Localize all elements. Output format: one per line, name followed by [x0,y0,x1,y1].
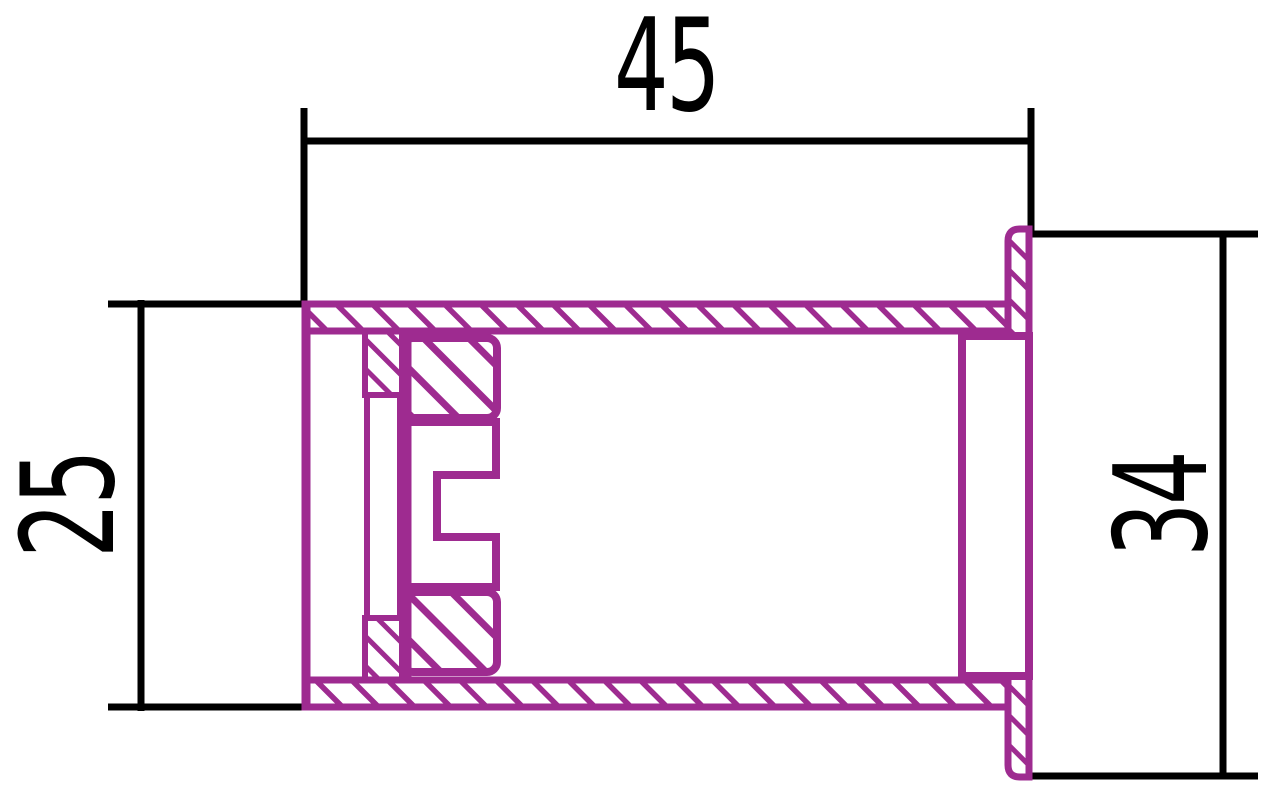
dimension-label-body-diameter-group: 25 [0,452,144,558]
inner-sleeve-lower-section [365,618,402,680]
dimension-body-diameter: 25 [0,300,305,711]
gland-profile [407,422,496,587]
end-cap-face [962,336,1029,676]
dimension-label-length: 45 [614,0,718,141]
drawing-canvas: 45 25 34 [0,0,1280,802]
part-section [305,229,1029,777]
dimension-label-body-diameter: 25 [0,452,144,558]
dimension-label-flange-diameter-group: 34 [1088,453,1237,557]
tube-lower-wall-section [305,680,1008,707]
technical-drawing: 45 25 34 [0,0,1280,802]
tube-upper-wall-section [305,304,1008,331]
upper-seal-section [403,338,497,418]
dimension-label-flange-diameter: 34 [1088,453,1237,557]
lower-seal-section [403,592,497,672]
flange-upper-section [1008,229,1029,336]
dimension-flange-diameter: 34 [1031,232,1258,778]
inner-sleeve-upper-section [365,331,402,395]
dimension-overall-length: 45 [304,0,1031,304]
inner-sleeve-body [367,395,400,618]
flange-lower-section [1008,676,1029,777]
